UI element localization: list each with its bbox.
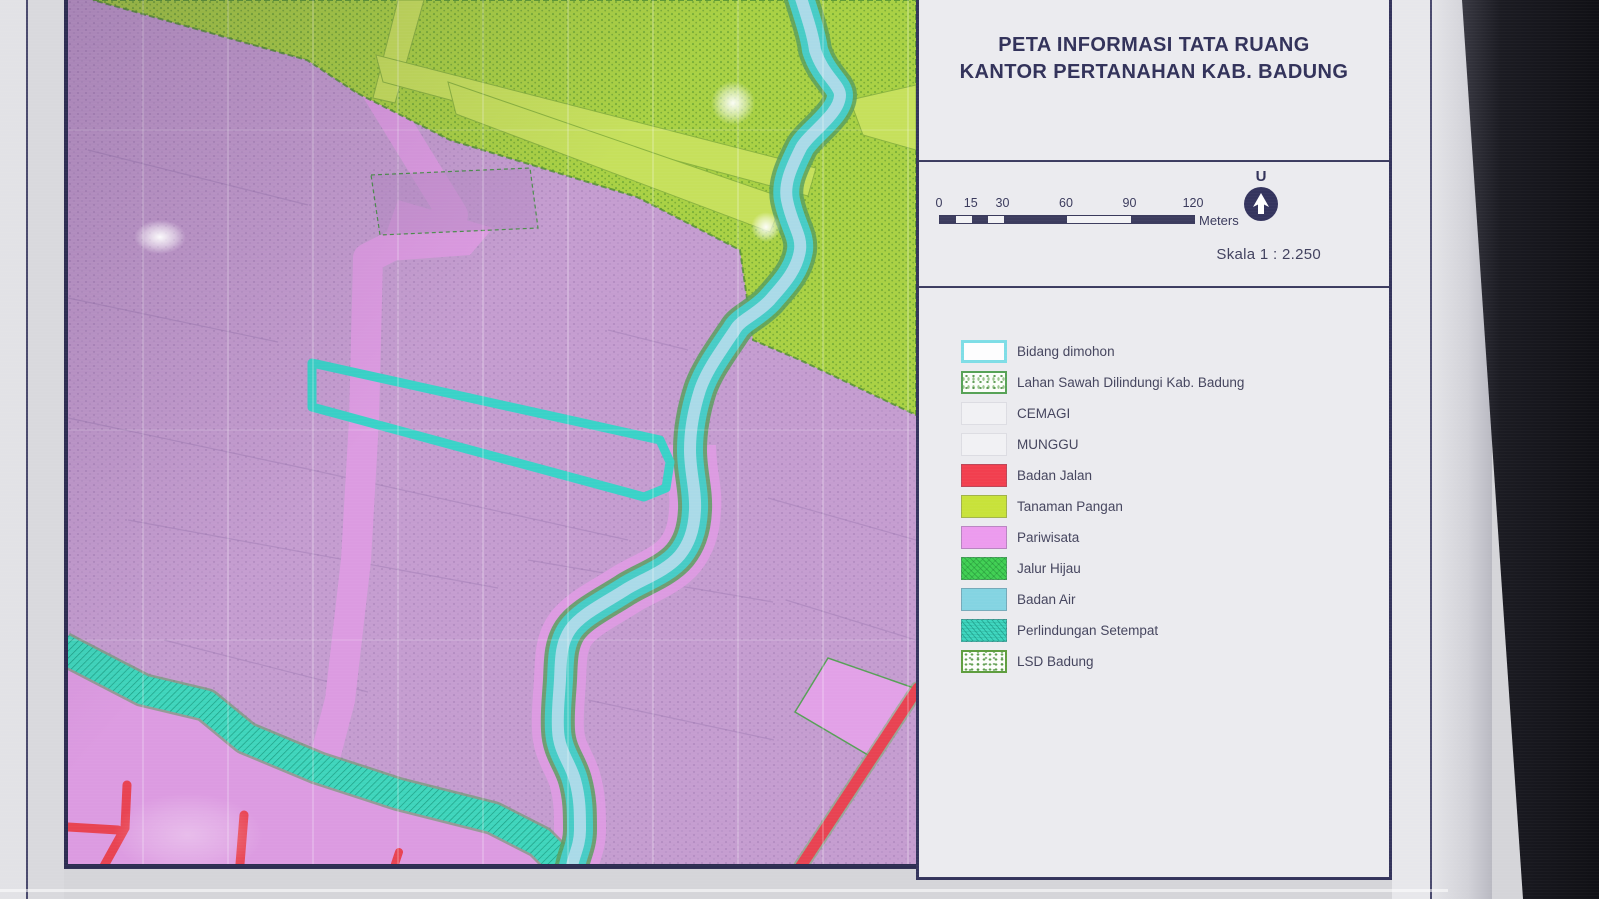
legend-item-tanaman-pangan: Tanaman Pangan [961,495,1389,518]
scale-tick-label: 60 [1059,196,1073,210]
paper-margin-left-inner [28,0,64,899]
legend-item-label: Jalur Hijau [1017,561,1081,576]
map-title-line1: PETA INFORMASI TATA RUANG [919,32,1389,59]
north-arrow: U [1241,168,1281,228]
north-label: U [1241,168,1281,185]
scale-segment [988,216,1004,223]
legend-item-label: Lahan Sawah Dilindungi Kab. Badung [1017,375,1244,390]
legend-item-label: MUNGGU [1017,437,1079,452]
legend-item-cemagi: CEMAGI [961,402,1389,425]
north-arrow-icon [1242,185,1280,223]
map-title-line2: KANTOR PERTANAHAN KAB. BADUNG [919,59,1389,86]
scale-segment [1067,216,1131,223]
legend-item-label: Tanaman Pangan [1017,499,1123,514]
textured-green-swatch [961,557,1007,580]
scale-tick-label: 0 [936,196,943,210]
map-canvas[interactable] [68,0,916,864]
legend-item-label: Perlindungan Setempat [1017,623,1158,638]
scale-segment [1131,216,1195,223]
title-section: PETA INFORMASI TATA RUANG KANTOR PERTANA… [919,0,1389,162]
scale-tick-label: 120 [1183,196,1204,210]
outline-cyan-swatch [961,340,1007,363]
speckle-lsd-swatch [961,650,1007,673]
scale-bar: 015306090120 Meters [939,196,1239,224]
legend-item-pariwisata: Pariwisata [961,526,1389,549]
legend-item-label: Badan Jalan [1017,468,1092,483]
screen-photo: PETA INFORMASI TATA RUANG KANTOR PERTANA… [0,0,1599,899]
scale-segment [940,216,956,223]
scale-ratio-text: Skala 1 : 2.250 [1216,246,1321,263]
speckle-green-swatch [961,371,1007,394]
legend-section: Bidang dimohon Lahan Sawah Dilindungi Ka… [919,288,1389,673]
map-frame [64,0,916,869]
blank-swatch [961,402,1007,425]
screen-bottom-line [0,889,1448,892]
legend-item-perlindungan-setempat: Perlindungan Setempat [961,619,1389,642]
legend-item-badan-jalan: Badan Jalan [961,464,1389,487]
scale-segment [1004,216,1068,223]
solid-swatch [961,588,1007,611]
scale-tick-label: 15 [964,196,978,210]
scale-segment [972,216,988,223]
scale-labels: 015306090120 [939,196,1239,212]
legend-item-lsd-badung: LSD Badung [961,650,1389,673]
paper-margin-right-inner [1392,0,1430,899]
hatch-teal-swatch [961,619,1007,642]
legend-item-label: Bidang dimohon [1017,344,1115,359]
scale-segment [956,216,972,223]
info-panel: PETA INFORMASI TATA RUANG KANTOR PERTANA… [916,0,1392,880]
solid-swatch [961,526,1007,549]
legend-item-badan-air: Badan Air [961,588,1389,611]
blank-swatch [961,433,1007,456]
scale-section: 015306090120 Meters U Skala 1 : 2.250 [919,162,1389,288]
legend-item-lahan-sawah-dilindungi-kab-badung: Lahan Sawah Dilindungi Kab. Badung [961,371,1389,394]
scale-tick-label: 90 [1123,196,1137,210]
legend-item-label: Pariwisata [1017,530,1079,545]
solid-swatch [961,495,1007,518]
legend-item-label: CEMAGI [1017,406,1070,421]
paper-margin-left-outer [0,0,26,899]
scale-unit-label: Meters [1199,213,1239,228]
legend-item-jalur-hijau: Jalur Hijau [961,557,1389,580]
legend-item-munggu: MUNGGU [961,433,1389,456]
solid-swatch [961,464,1007,487]
scale-tick-label: 30 [996,196,1010,210]
legend-item-bidang-dimohon: Bidang dimohon [961,340,1389,363]
scale-bar-segments [939,215,1195,224]
legend-item-label: LSD Badung [1017,654,1094,669]
legend-item-label: Badan Air [1017,592,1076,607]
